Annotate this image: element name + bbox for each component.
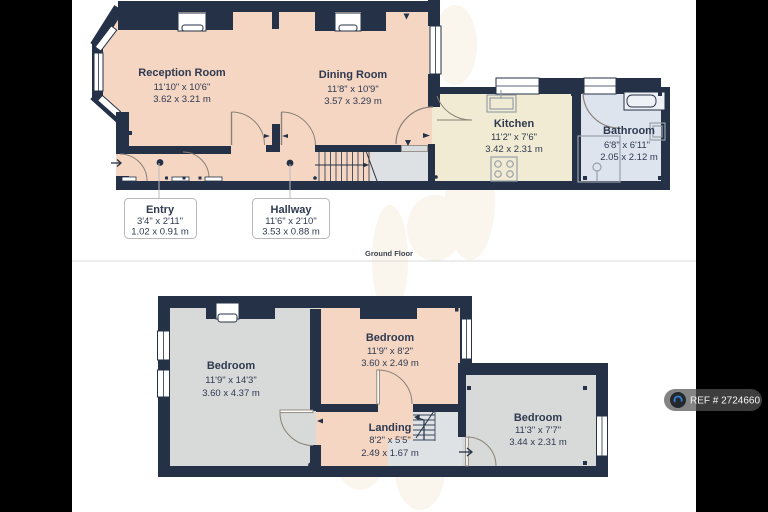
svg-text:Dining Room: Dining Room: [319, 69, 388, 81]
svg-text:Landing: Landing: [369, 422, 412, 434]
svg-text:11'3" x 7'7": 11'3" x 7'7": [515, 425, 561, 436]
svg-text:11'2" x 7'6": 11'2" x 7'6": [491, 132, 537, 143]
svg-text:11'9" x 14'3": 11'9" x 14'3": [205, 375, 256, 386]
svg-text:11'8" x 10'9": 11'8" x 10'9": [327, 84, 378, 95]
svg-text:3.53 x 0.88 m: 3.53 x 0.88 m: [262, 227, 320, 238]
svg-text:2.05 x 2.12 m: 2.05 x 2.12 m: [600, 152, 658, 163]
svg-text:8'2" x 5'5": 8'2" x 5'5": [369, 435, 411, 446]
svg-text:3'4" x 2'11": 3'4" x 2'11": [137, 216, 183, 227]
svg-text:2.49 x 1.67 m: 2.49 x 1.67 m: [361, 448, 419, 459]
svg-text:3.60 x 4.37 m: 3.60 x 4.37 m: [202, 388, 260, 399]
svg-text:Ground Floor: Ground Floor: [365, 249, 413, 258]
svg-text:3.42 x 2.31 m: 3.42 x 2.31 m: [485, 144, 543, 155]
svg-text:6'8" x 6'11": 6'8" x 6'11": [604, 140, 650, 151]
svg-text:Hallway: Hallway: [271, 204, 313, 216]
svg-text:3.57 x 3.29 m: 3.57 x 3.29 m: [324, 96, 382, 107]
svg-text:11'10" x 10'6": 11'10" x 10'6": [154, 82, 211, 93]
svg-text:1.02 x 0.91 m: 1.02 x 0.91 m: [131, 227, 189, 238]
svg-text:Kitchen: Kitchen: [494, 118, 535, 130]
svg-text:REF # 2724660: REF # 2724660: [690, 396, 760, 407]
svg-text:Bedroom: Bedroom: [514, 412, 563, 424]
svg-text:3.60 x 2.49 m: 3.60 x 2.49 m: [361, 358, 419, 369]
svg-text:Bedroom: Bedroom: [207, 360, 256, 372]
svg-text:3.62 x 3.21 m: 3.62 x 3.21 m: [153, 94, 211, 105]
svg-text:11'6" x 2'10": 11'6" x 2'10": [265, 216, 316, 227]
svg-text:Bedroom: Bedroom: [366, 332, 415, 344]
svg-text:Reception Room: Reception Room: [138, 67, 226, 79]
svg-text:Bathroom: Bathroom: [603, 125, 655, 137]
svg-text:3.44 x 2.31 m: 3.44 x 2.31 m: [509, 437, 567, 448]
svg-text:11'9" x 8'2": 11'9" x 8'2": [367, 346, 413, 357]
svg-text:Entry: Entry: [146, 204, 175, 216]
